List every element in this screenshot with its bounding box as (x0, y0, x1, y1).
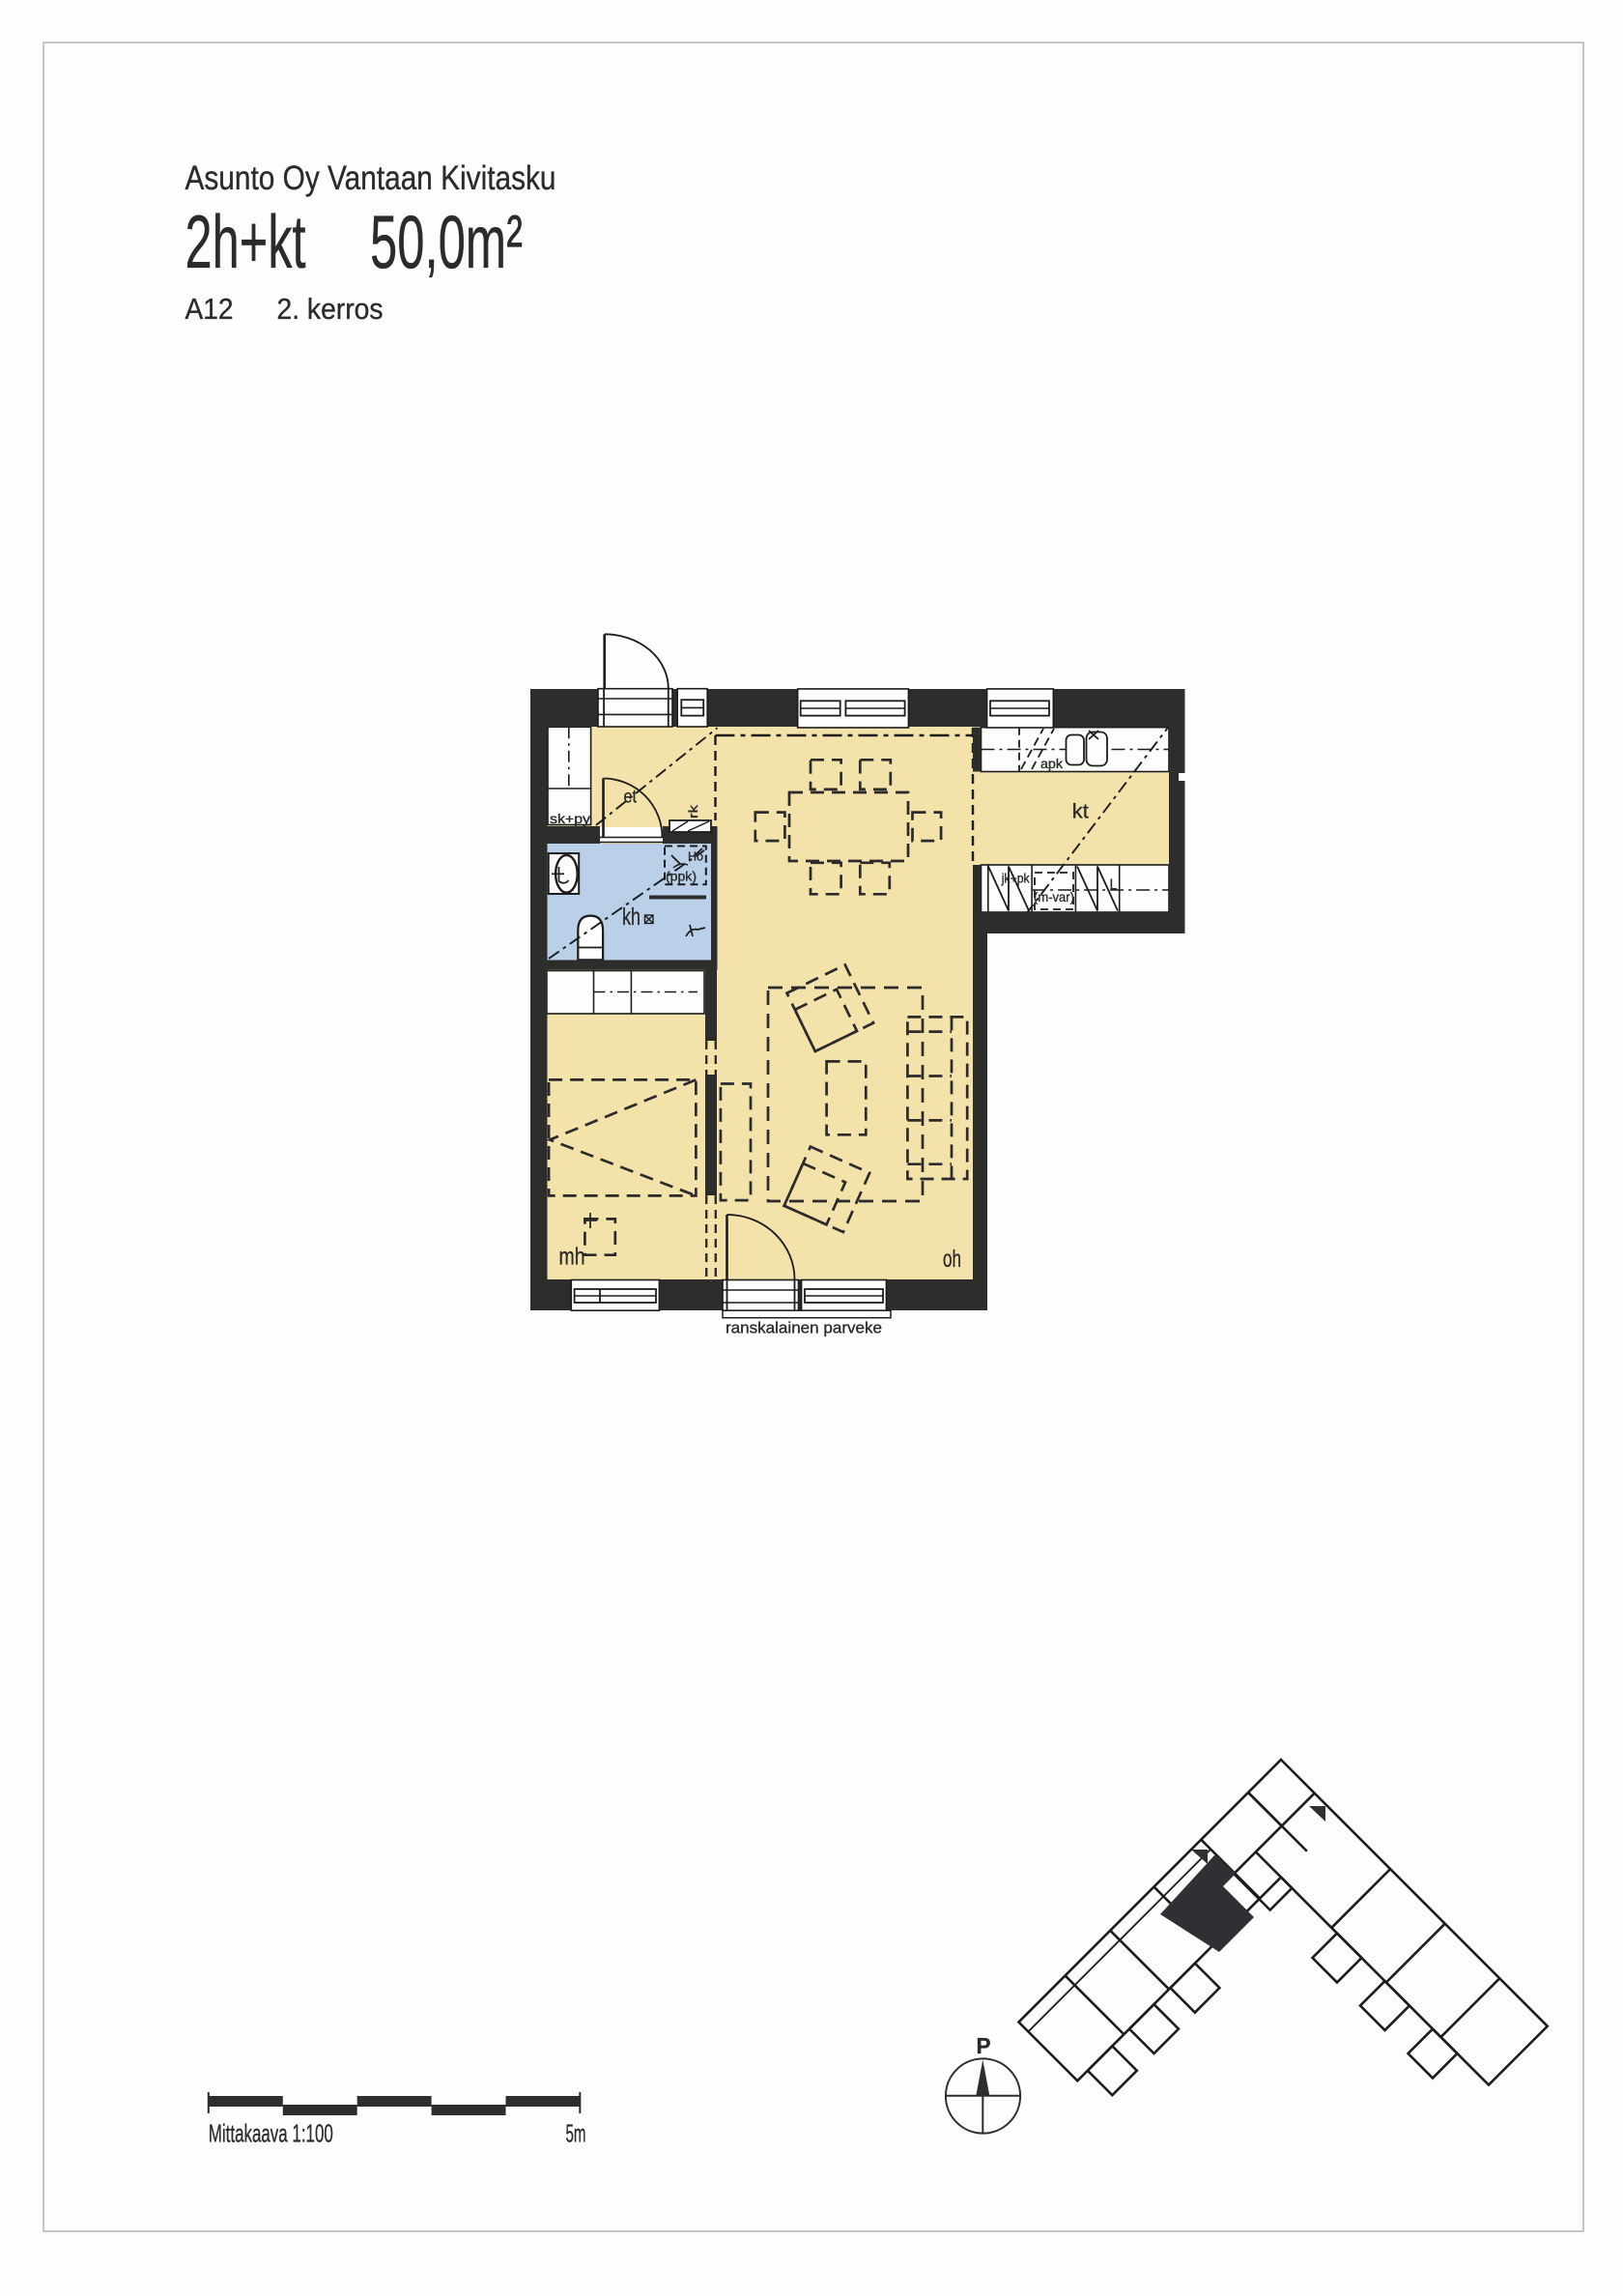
svg-text:5m: 5m (566, 2119, 586, 2148)
svg-text:jk+pk: jk+pk (1001, 871, 1031, 886)
svg-text:2h+kt: 2h+kt (185, 199, 306, 284)
svg-text:L: L (1110, 877, 1118, 894)
svg-text:ranskalainen parveke: ranskalainen parveke (726, 1319, 882, 1337)
svg-text:(m-var): (m-var) (1034, 889, 1074, 904)
svg-text:Hö: Hö (688, 849, 703, 864)
svg-text:Asunto Oy Vantaan Kivitasku: Asunto Oy Vantaan Kivitasku (185, 159, 556, 197)
svg-text:apk: apk (1040, 756, 1064, 771)
svg-text:2. kerros: 2. kerros (277, 292, 384, 326)
svg-text:P: P (977, 2033, 991, 2058)
svg-text:oh: oh (943, 1246, 961, 1273)
svg-text:Mittakaava 1:100: Mittakaava 1:100 (209, 2119, 333, 2148)
svg-text:50,0m²: 50,0m² (370, 199, 523, 284)
svg-text:et: et (624, 788, 638, 808)
svg-text:kh: kh (622, 904, 641, 931)
svg-text:mh: mh (559, 1244, 585, 1271)
svg-text:sk+py: sk+py (550, 811, 590, 826)
svg-text:(ppk): (ppk) (666, 869, 697, 884)
svg-text:rk: rk (686, 804, 700, 818)
svg-text:kt: kt (1072, 801, 1089, 823)
svg-text:A12: A12 (185, 292, 234, 326)
